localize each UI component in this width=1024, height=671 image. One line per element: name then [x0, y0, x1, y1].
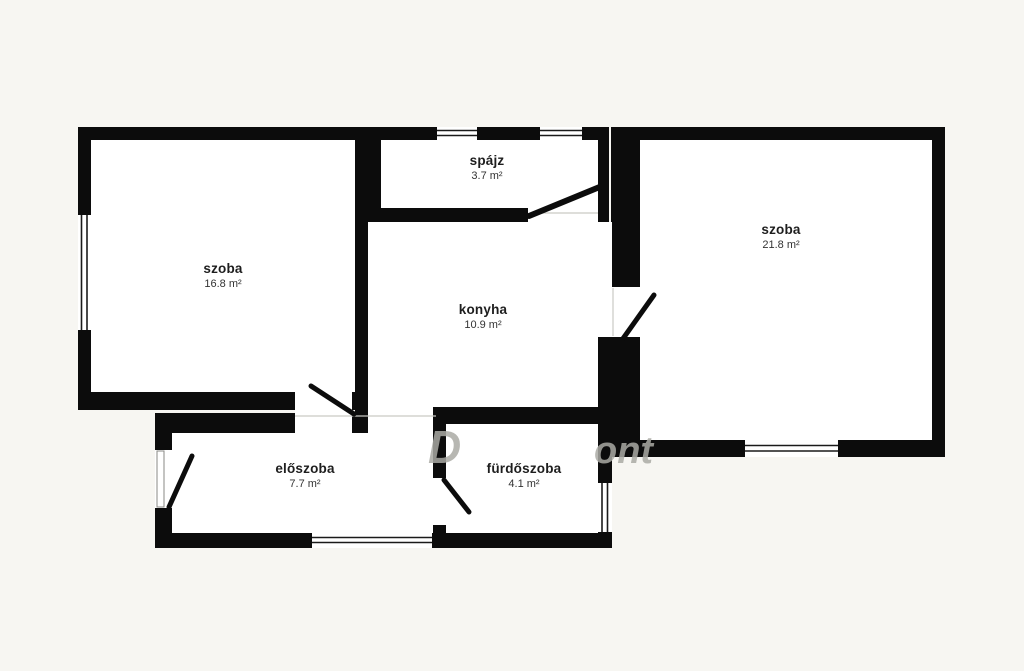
entrance-door-jamb — [157, 451, 164, 507]
window-furdoszoba-icon — [598, 483, 612, 532]
window-szoba-right-icon — [745, 440, 838, 457]
floorplan-canvas: szoba 16.8 m² spájz 3.7 m² konyha 10.9 m… — [0, 0, 1024, 671]
opening-szoba-right-door — [612, 287, 640, 337]
opening-furdoszoba-door — [433, 478, 446, 525]
floor-szoba-right — [640, 140, 932, 440]
window-spajz-1-icon — [437, 127, 477, 140]
window-spajz-2-icon — [540, 127, 582, 140]
window-eloszoba-icon — [312, 533, 432, 548]
floor-konyha — [368, 222, 598, 407]
opening-szoba-left-door — [295, 392, 352, 433]
window-szoba-left-icon — [78, 215, 91, 330]
floor-szoba-left — [91, 140, 355, 392]
floor-konyha-alcove — [598, 222, 612, 337]
passage-konyha-eloszoba — [368, 407, 433, 433]
floorplan-drawing — [0, 0, 1024, 671]
floor-furdoszoba — [446, 424, 598, 533]
floor-eloszoba — [172, 433, 433, 533]
